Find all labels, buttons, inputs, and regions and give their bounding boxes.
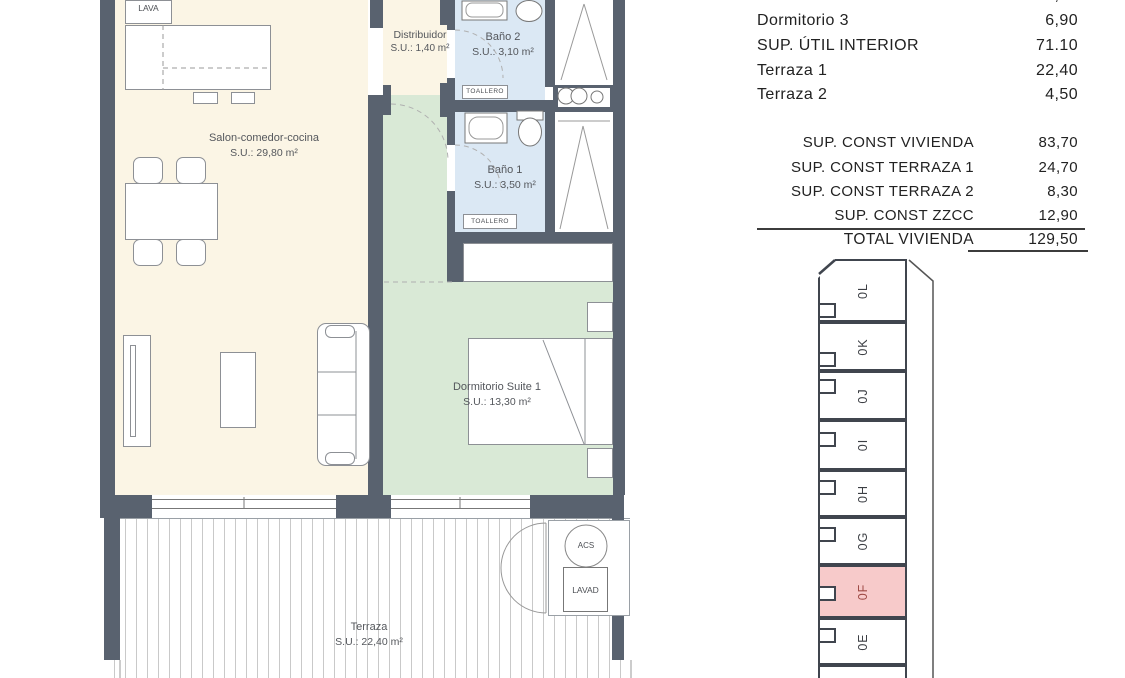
unit-notch [818, 432, 836, 447]
table-row: Dormitorio 3 6,90 [757, 12, 1078, 32]
wall-stub-suite [447, 243, 463, 282]
wall-jamb-entry-left [370, 0, 383, 28]
dining-chair-1 [133, 157, 163, 184]
nightstand-2 [587, 448, 613, 478]
row-label: SUP. CONST ZZCC [834, 207, 974, 224]
row-value: 6,90 [1045, 12, 1078, 30]
lavad-label: LAVAD [565, 585, 606, 595]
total-underline [968, 250, 1088, 252]
table-row: Dormitorio 2 11,60 [757, 0, 1078, 7]
sofa-armrest-bottom [325, 452, 355, 465]
key-plan-unit-0J: 0J [818, 371, 907, 420]
row-value: 4,50 [1045, 86, 1078, 104]
wall-window-right [530, 495, 624, 518]
kitchen-counter [125, 25, 271, 90]
unit-notch [818, 352, 836, 367]
row-value: 22,40 [1036, 62, 1078, 80]
wardrobe-fill-top [555, 0, 613, 85]
suite-wardrobe [463, 243, 613, 282]
unit-label: 0G [856, 532, 870, 551]
key-plan-unit-0F: 0F [818, 565, 907, 618]
row-label: Dormitorio 2 [757, 0, 849, 5]
row-value: 83,70 [1038, 134, 1078, 151]
wall-left [100, 0, 115, 495]
row-value: 24,70 [1038, 159, 1078, 176]
row-label: Dormitorio 3 [757, 12, 849, 30]
unit-label: 0J [856, 388, 870, 403]
row-value: 8,30 [1047, 183, 1078, 200]
unit-label: 0F [856, 583, 870, 600]
room-label-terraza: Terraza S.U.: 22,40 m² [335, 620, 403, 649]
table-row: SUP. CONST ZZCC 12,90 [757, 207, 1078, 227]
wall-banos-left-a [447, 0, 455, 30]
total-label: TOTAL VIVIENDA [844, 231, 974, 249]
wall-corner-bl [100, 495, 152, 518]
room-fill-passage [383, 95, 447, 283]
wall-window-mid [336, 495, 391, 518]
row-value: 12,90 [1038, 207, 1078, 224]
sofa-armrest-top [325, 325, 355, 338]
row-label: SUP. CONST TERRAZA 1 [791, 159, 974, 176]
unit-notch [818, 586, 836, 601]
unit-notch [818, 303, 836, 318]
key-plan-unit-0I: 0I [818, 420, 907, 470]
key-plan-unit-partial [818, 665, 907, 678]
unit-label: 0K [856, 338, 870, 355]
key-plan-unit-0G: 0G [818, 517, 907, 565]
total-rule [757, 228, 1085, 230]
table-row: SUP. CONST TERRAZA 2 8,30 [757, 183, 1078, 203]
nightstand-1 [587, 302, 613, 332]
wall-banos-right-b [545, 110, 555, 232]
row-value: 11,60 [1037, 0, 1078, 5]
total-row: TOTAL VIVIENDA 129,50 [757, 231, 1078, 251]
dining-table [125, 183, 218, 240]
key-plan-unit-0E: 0E [818, 618, 907, 665]
floorplan-sheet: LAVA TOALLERO TOALLERO ACS LAVAD [0, 0, 1125, 678]
room-label-suite: Dormitorio Suite 1 S.U.: 13,30 m² [453, 380, 541, 409]
coffee-table [220, 352, 256, 428]
window-salon [152, 499, 336, 509]
wall-horiz-suite [447, 232, 625, 243]
unit-notch [818, 628, 836, 643]
room-label-salon: Salon-comedor-cocina S.U.: 29,80 m² [209, 131, 319, 160]
wall-banos-right-a [545, 0, 555, 87]
table-row: SUP. CONST VIVIENDA 83,70 [757, 134, 1078, 154]
row-label: SUP. CONST TERRAZA 2 [791, 183, 974, 200]
toallero-label-bano2: TOALLERO [463, 88, 507, 95]
unit-notch [818, 379, 836, 394]
table-row: SUP. ÚTIL INTERIOR 71.10 [757, 37, 1078, 57]
wall-jamb-passage-left [383, 85, 391, 115]
kitchen-stool-2 [231, 92, 255, 104]
wall-terrace-left [104, 518, 120, 660]
row-label: SUP. CONST VIVIENDA [803, 134, 974, 151]
wardrobe-fill-bottom [555, 112, 613, 232]
room-label-bano1: Baño 1 S.U.: 3,50 m² [474, 163, 536, 192]
key-plan: 0L 0K 0J 0I 0H 0G 0F 0E [818, 259, 907, 678]
unit-label: 0I [856, 439, 870, 451]
kitchen-stool-1 [193, 92, 218, 104]
wall-mid-vertical [368, 95, 383, 495]
sofa [317, 323, 370, 466]
key-plan-unit-0K: 0K [818, 322, 907, 371]
dining-chair-3 [133, 239, 163, 266]
unit-label: 0E [856, 633, 870, 650]
row-label: Terraza 2 [757, 86, 827, 104]
tv-unit-inner [130, 345, 136, 437]
table-row: SUP. CONST TERRAZA 1 24,70 [757, 159, 1078, 179]
total-value: 129,50 [1028, 231, 1078, 249]
unit-notch [818, 480, 836, 495]
key-plan-unit-0H: 0H [818, 470, 907, 517]
toallero-label-bano1: TOALLERO [465, 218, 515, 225]
unit-label: 0H [856, 485, 870, 503]
tv-unit [123, 335, 151, 447]
lava-label: LAVA [129, 3, 168, 13]
unit-label: 0L [856, 283, 870, 299]
room-label-distribuidor: Distribuidor S.U.: 1,40 m² [391, 28, 450, 56]
dining-chair-4 [176, 239, 206, 266]
dining-chair-2 [176, 157, 206, 184]
key-plan-unit-0L: 0L [818, 259, 907, 322]
table-row: Terraza 1 22,40 [757, 62, 1078, 82]
niche-inner [558, 88, 610, 107]
wall-right [613, 0, 625, 495]
unit-notch [818, 527, 836, 542]
window-suite [391, 499, 530, 509]
row-label: SUP. ÚTIL INTERIOR [757, 37, 919, 55]
table-row: Terraza 2 4,50 [757, 86, 1078, 106]
row-value: 71.10 [1036, 37, 1078, 55]
row-label: Terraza 1 [757, 62, 827, 80]
acs-label: ACS [570, 541, 602, 550]
room-label-bano2: Baño 2 S.U.: 3,10 m² [472, 30, 534, 59]
